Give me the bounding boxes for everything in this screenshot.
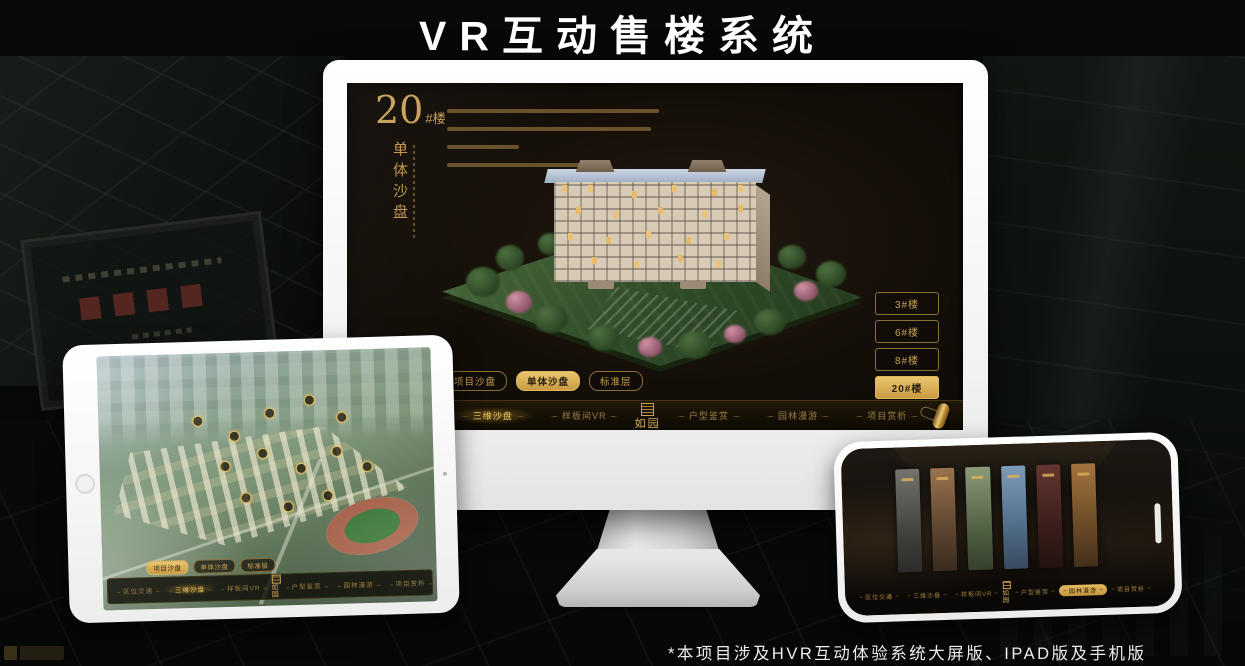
unit-title: 20#楼 [375, 91, 446, 129]
brand-logo-text: 如园 [271, 584, 280, 598]
residential-building [554, 169, 756, 285]
plaque-text-row [79, 283, 211, 321]
lit-windows [562, 185, 567, 192]
tab-single-sandtable[interactable]: 单体沙盘 [516, 371, 580, 391]
tree [496, 245, 524, 271]
model-lawn-base [442, 223, 862, 366]
nav-item-3d-sandtable[interactable]: 三维沙盘 [164, 582, 216, 595]
model-base-edge [442, 229, 862, 372]
model-garden-path [584, 287, 740, 353]
scene-card[interactable] [1001, 465, 1028, 569]
phone-navbar: 区位交通 三维沙盘 样板间VR 如园 户型鉴赏 园林漫游 项目赏析 [855, 577, 1150, 608]
home-indicator[interactable] [1154, 503, 1161, 543]
building-model[interactable] [442, 149, 862, 367]
flower-tree [638, 337, 662, 357]
building-facade [554, 182, 756, 282]
brand-logo-text: 如园 [635, 418, 661, 429]
flower-tree [506, 291, 532, 313]
seal-icon [271, 575, 280, 584]
nav-item-project-gallery[interactable]: 项目赏析 [384, 576, 436, 589]
tree [678, 331, 712, 359]
nav-item-floorplan[interactable]: 户型鉴赏 [668, 407, 750, 424]
flower-tree [724, 325, 746, 343]
scene-card[interactable] [1071, 463, 1098, 567]
seal-icon [641, 403, 654, 416]
seal-icon [1002, 581, 1010, 589]
phone-device: 区位交通 三维沙盘 样板间VR 如园 户型鉴赏 园林漫游 项目赏析 [833, 432, 1183, 624]
building-roof [544, 169, 765, 183]
brand-logo: 如园 [271, 575, 281, 599]
scene-card[interactable] [895, 469, 922, 573]
nav-item-3d-sandtable[interactable]: 三维沙盘 [452, 407, 534, 424]
tree [778, 245, 806, 269]
scene-gallery [895, 463, 1098, 572]
tab-project-sandtable[interactable]: 项目沙盘 [146, 560, 188, 575]
tree [754, 309, 786, 335]
tab-standard-floor[interactable]: 标准层 [589, 371, 643, 391]
nav-item-floorplan[interactable]: 户型鉴赏 [1011, 585, 1059, 598]
tab-standard-floor[interactable]: 标准层 [240, 558, 275, 573]
brand-logo: 如园 [635, 403, 661, 429]
building-selector: 3#楼 6#楼 8#楼 20#楼 [875, 292, 939, 399]
roof-tower [572, 160, 618, 172]
background-map-collage [0, 56, 345, 386]
scene-card[interactable] [1036, 464, 1063, 568]
phone-screen: 区位交通 三维沙盘 样板间VR 如园 户型鉴赏 园林漫游 项目赏析 [840, 439, 1175, 616]
nav-item-model-room-vr[interactable]: 样板间VR [951, 587, 1003, 600]
nav-item-location-traffic[interactable]: 区位交通 [855, 590, 903, 603]
scroll-menu-icon[interactable] [931, 401, 951, 430]
nav-item-floorplan[interactable]: 户型鉴赏 [280, 579, 332, 592]
entrance-canopy [680, 281, 706, 289]
unit-suffix: #楼 [425, 111, 445, 126]
plaque-text-row [62, 257, 222, 282]
footnote-text: *本项目涉及HVR互动体验系统大屏版、IPAD版及手机版 [668, 640, 1147, 664]
text-line [447, 109, 659, 113]
nav-item-garden-tour[interactable]: 园林漫游 [757, 407, 839, 424]
unit-subtitle-english-line [413, 145, 415, 241]
nav-item-project-gallery[interactable]: 项目赏析 [1107, 582, 1155, 595]
tablet-home-button[interactable] [75, 474, 96, 495]
scene-card[interactable] [930, 468, 957, 572]
building-button-6[interactable]: 6#楼 [875, 320, 939, 343]
page-title: VR互动售楼系统 [0, 2, 1245, 62]
sandtable-mode-tabs: 项目沙盘 单体沙盘 标准层 [443, 371, 643, 391]
tab-single-sandtable[interactable]: 单体沙盘 [193, 559, 235, 574]
nav-item-location-traffic[interactable]: 区位交通 [112, 584, 164, 597]
nav-item-project-gallery[interactable]: 项目赏析 [846, 407, 928, 424]
tablet-device: 项目沙盘 单体沙盘 标准层 区位交通 三维沙盘 样板间VR 如园 户型鉴赏 园林… [62, 335, 460, 624]
tree [466, 267, 500, 297]
flower-tree [568, 241, 588, 259]
nav-item-model-room-vr[interactable]: 样板间VR [541, 407, 628, 424]
scene-card[interactable] [965, 467, 992, 571]
nav-item-model-room-vr[interactable]: 样板间VR [216, 581, 272, 595]
nav-item-garden-tour[interactable]: 园林漫游 [1059, 583, 1107, 596]
unit-number: 20 [375, 88, 423, 132]
tablet-screen: 项目沙盘 单体沙盘 标准层 区位交通 三维沙盘 样板间VR 如园 户型鉴赏 园林… [97, 347, 438, 610]
background-logo-mark [4, 646, 64, 660]
plaque-text-row [132, 327, 192, 339]
text-line [447, 127, 651, 131]
brand-logo: 如园 [1002, 581, 1011, 603]
entrance-canopy [588, 281, 614, 289]
building-button-8[interactable]: 8#楼 [875, 348, 939, 371]
text-line [447, 145, 519, 149]
tree [588, 325, 620, 351]
tablet-camera [443, 472, 447, 476]
building-button-20[interactable]: 20#楼 [875, 376, 939, 399]
tree [534, 305, 568, 333]
building-sidewall [756, 185, 770, 292]
monitor-stand-base [556, 549, 760, 607]
roof-tower [684, 160, 730, 172]
promo-canvas: VR互动售楼系统 20#楼 单体沙盘 [0, 0, 1245, 666]
tree [538, 233, 562, 255]
unit-subtitle: 单体沙盘 [389, 141, 410, 225]
nav-item-3d-sandtable[interactable]: 三维沙盘 [903, 588, 951, 601]
text-line [447, 163, 597, 167]
tree [816, 261, 846, 287]
description-paragraph [447, 109, 663, 181]
flower-tree [794, 281, 818, 301]
building-button-3[interactable]: 3#楼 [875, 292, 939, 315]
nav-item-garden-tour[interactable]: 园林漫游 [332, 578, 384, 591]
